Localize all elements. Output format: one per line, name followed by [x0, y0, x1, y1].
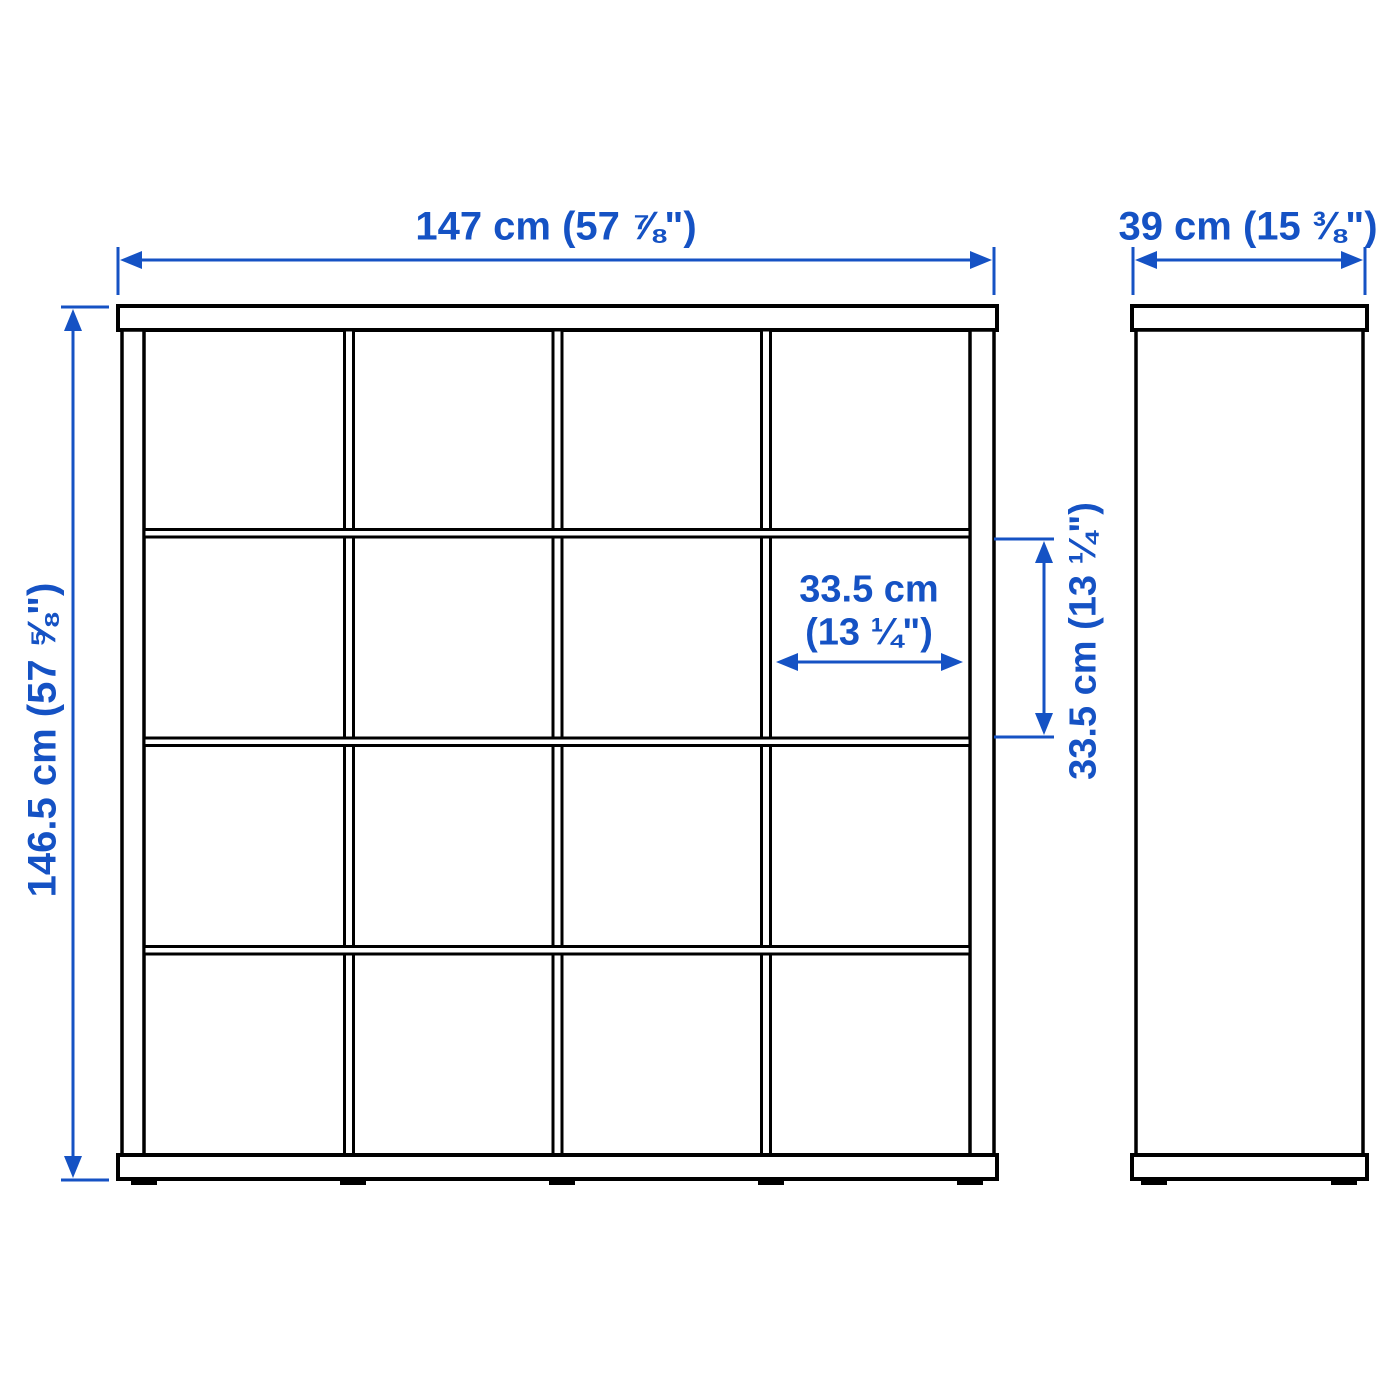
front-foot: [758, 1177, 784, 1185]
width-dimension-label: 147 cm (57 ⅞"): [415, 205, 696, 250]
cell-width-value-in: (13 ¼"): [799, 611, 938, 654]
side-body-panel: [1136, 330, 1363, 1155]
front-right-side-panel: [970, 330, 994, 1155]
depth-dimension-label: 39 cm (15 ⅜"): [1118, 205, 1377, 250]
height-dimension-label: 146.5 cm (57 ⅝"): [21, 583, 66, 898]
front-shelf: [144, 947, 970, 955]
side-foot: [1141, 1177, 1167, 1185]
arrowhead-left: [120, 251, 142, 269]
side-view: [1132, 306, 1367, 1185]
front-foot: [549, 1177, 575, 1185]
front-shelf: [144, 530, 970, 538]
depth-dimension: [1133, 247, 1365, 295]
front-foot: [131, 1177, 157, 1185]
arrowhead-left: [1135, 251, 1157, 269]
arrowhead-up: [1035, 541, 1053, 563]
cell-width-value-cm: 33.5 cm: [799, 568, 938, 611]
side-foot: [1331, 1177, 1357, 1185]
arrowhead-left: [776, 653, 798, 671]
arrowhead-up: [64, 309, 82, 331]
height-dimension: [61, 307, 109, 1180]
cell-width-dimension: [776, 653, 963, 671]
front-left-side-panel: [122, 330, 144, 1155]
cell-width-dimension-label: 33.5 cm (13 ¼"): [799, 568, 938, 653]
arrowhead-down: [1035, 713, 1053, 735]
cell-height-dimension-label: 33.5 cm (13 ¼"): [1063, 502, 1106, 780]
front-top-panel: [118, 306, 997, 330]
front-base-plinth: [118, 1155, 997, 1179]
cell-height-dimension: [994, 539, 1054, 737]
side-base-plinth: [1132, 1155, 1367, 1179]
side-top-panel: [1132, 306, 1367, 330]
arrowhead-right: [1341, 251, 1363, 269]
front-shelf: [144, 738, 970, 746]
arrowhead-right: [970, 251, 992, 269]
front-foot: [957, 1177, 983, 1185]
front-view: [118, 306, 997, 1185]
arrowhead-down: [64, 1156, 82, 1178]
front-foot: [340, 1177, 366, 1185]
width-dimension: [118, 247, 994, 295]
dimension-diagram: 147 cm (57 ⅞") 39 cm (15 ⅜") 146.5 cm (5…: [0, 0, 1400, 1400]
arrowhead-right: [941, 653, 963, 671]
